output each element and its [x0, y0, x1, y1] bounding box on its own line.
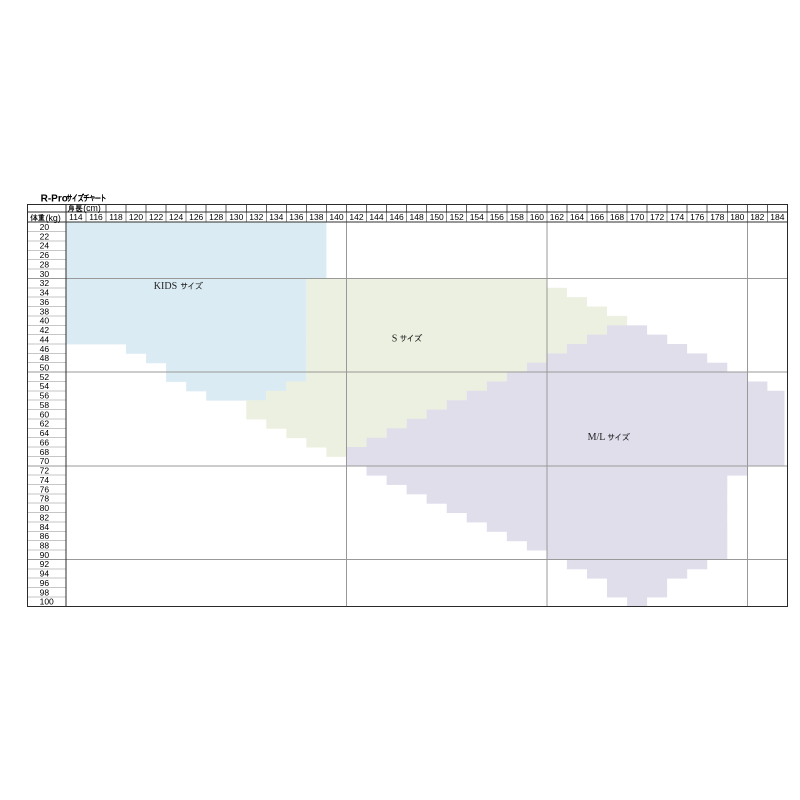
svg-text:(kg): (kg) [46, 213, 61, 223]
svg-text:128: 128 [209, 212, 223, 222]
svg-text:138: 138 [309, 212, 323, 222]
svg-text:162: 162 [550, 212, 564, 222]
svg-text:166: 166 [590, 212, 604, 222]
svg-text:184: 184 [770, 212, 784, 222]
svg-text:122: 122 [149, 212, 163, 222]
svg-text:180: 180 [730, 212, 744, 222]
svg-text:160: 160 [530, 212, 544, 222]
svg-text:146: 146 [390, 212, 404, 222]
svg-text:164: 164 [570, 212, 584, 222]
svg-text:148: 148 [410, 212, 424, 222]
svg-text:136: 136 [289, 212, 303, 222]
svg-text:KIDS: KIDS [154, 281, 177, 292]
svg-text:126: 126 [189, 212, 203, 222]
svg-text:144: 144 [369, 212, 383, 222]
svg-text:178: 178 [710, 212, 724, 222]
svg-text:M/L: M/L [588, 432, 606, 443]
svg-text:116: 116 [89, 212, 103, 222]
svg-text:100: 100 [40, 597, 54, 607]
svg-text:S: S [392, 333, 398, 344]
svg-text:154: 154 [470, 212, 484, 222]
svg-text:142: 142 [349, 212, 363, 222]
svg-text:174: 174 [670, 212, 684, 222]
svg-text:168: 168 [610, 212, 624, 222]
svg-text:172: 172 [650, 212, 664, 222]
svg-text:152: 152 [450, 212, 464, 222]
svg-text:158: 158 [510, 212, 524, 222]
svg-text:140: 140 [329, 212, 343, 222]
svg-text:150: 150 [430, 212, 444, 222]
svg-text:(cm): (cm) [83, 203, 101, 213]
svg-text:156: 156 [490, 212, 504, 222]
svg-text:R-Pro: R-Pro [41, 194, 68, 205]
svg-text:120: 120 [129, 212, 143, 222]
svg-text:132: 132 [249, 212, 263, 222]
svg-text:182: 182 [750, 212, 764, 222]
svg-text:176: 176 [690, 212, 704, 222]
svg-text:170: 170 [630, 212, 644, 222]
svg-text:134: 134 [269, 212, 283, 222]
svg-text:130: 130 [229, 212, 243, 222]
svg-text:124: 124 [169, 212, 183, 222]
svg-text:114: 114 [69, 212, 83, 222]
svg-text:118: 118 [109, 212, 123, 222]
